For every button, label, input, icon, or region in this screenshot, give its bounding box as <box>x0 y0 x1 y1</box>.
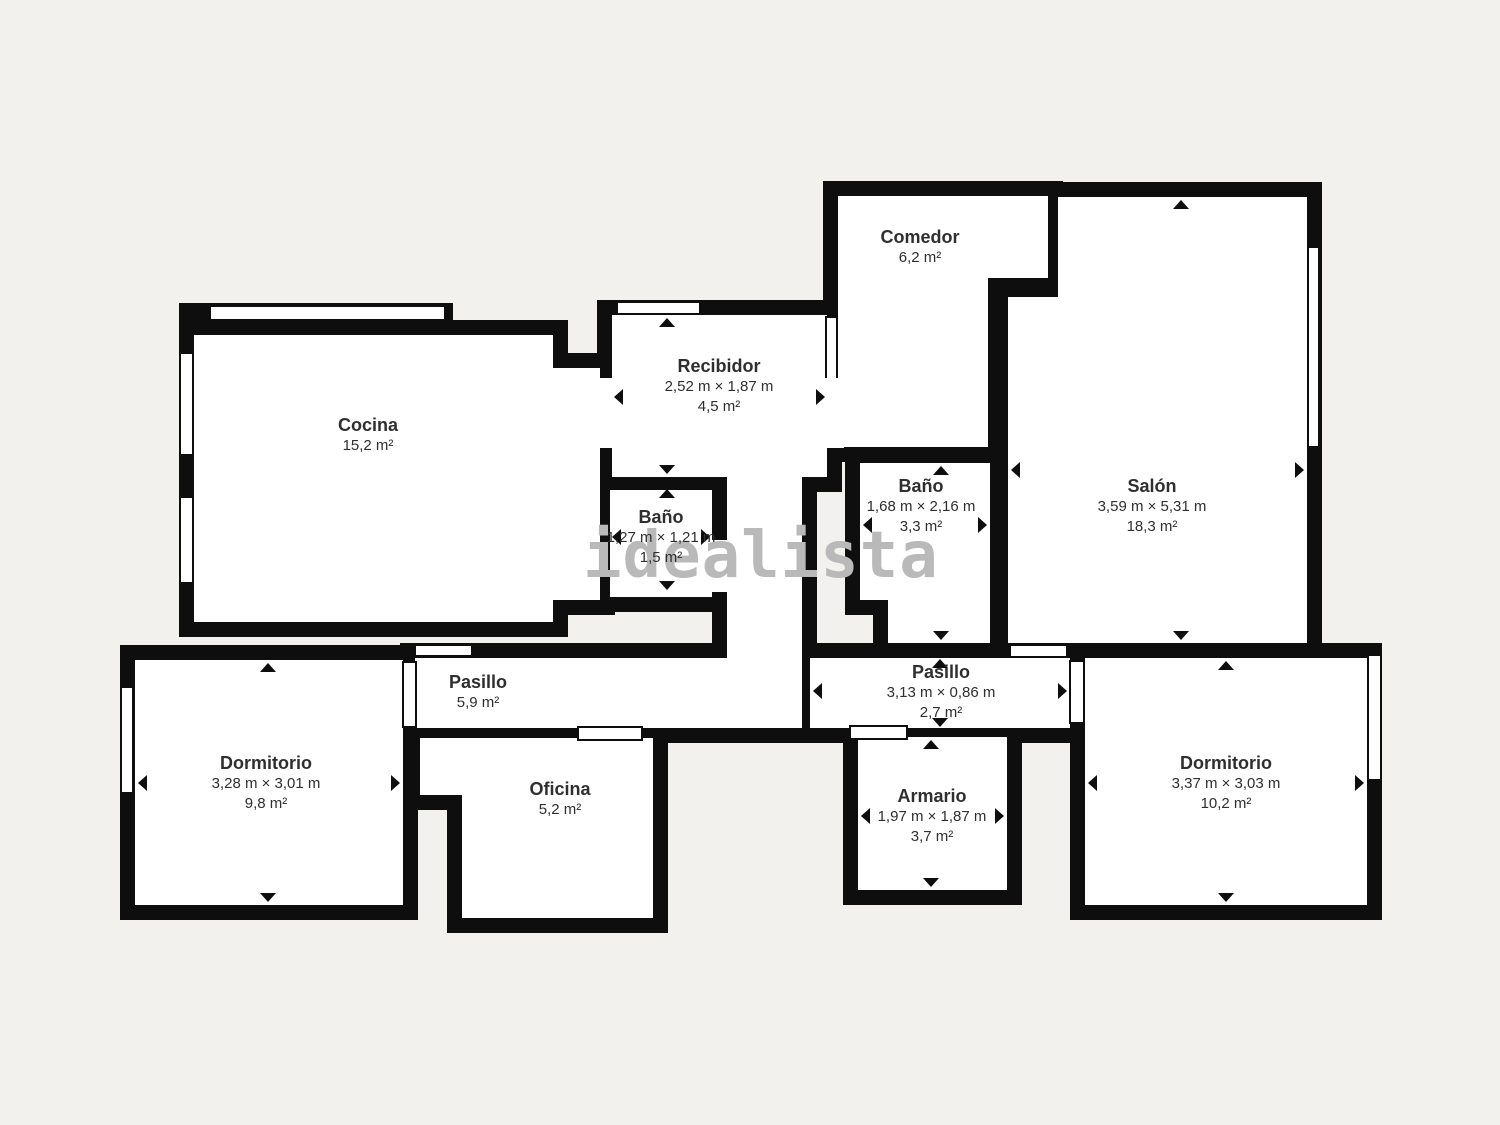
room-label-armario: Armario 1,97 m × 1,87 m 3,7 m² <box>878 786 987 847</box>
room-label-recibidor: Recibidor 2,52 m × 1,87 m 4,5 m² <box>665 356 774 417</box>
room-name: Dormitorio <box>212 753 321 774</box>
room-name: Salón <box>1098 476 1207 497</box>
room-area: 5,2 m² <box>529 800 590 820</box>
room-area: 9,8 m² <box>212 794 321 814</box>
room-area: 3,7 m² <box>878 827 987 847</box>
floor-plan: idealista Comedor 6,2 m² Cocina 15,2 m² … <box>0 0 1500 1125</box>
room-name: Armario <box>878 786 987 807</box>
room-label-salon: Salón 3,59 m × 5,31 m 18,3 m² <box>1098 476 1207 537</box>
room-area: 2,7 m² <box>887 703 996 723</box>
room-dims: 1,27 m × 1,21 m <box>607 528 716 548</box>
room-label-comedor: Comedor 6,2 m² <box>880 227 959 268</box>
room-area: 5,9 m² <box>449 693 507 713</box>
room-area: 18,3 m² <box>1098 517 1207 537</box>
room-dims: 3,13 m × 0,86 m <box>887 683 996 703</box>
room-name: Cocina <box>338 415 398 436</box>
room-name: Pasillo <box>449 672 507 693</box>
room-dims: 1,68 m × 2,16 m <box>867 497 976 517</box>
room-area: 4,5 m² <box>665 397 774 417</box>
room-label-dormitorio-derecho: Dormitorio 3,37 m × 3,03 m 10,2 m² <box>1172 753 1281 814</box>
room-area: 15,2 m² <box>338 436 398 456</box>
room-dims: 1,97 m × 1,87 m <box>878 807 987 827</box>
room-dims: 3,37 m × 3,03 m <box>1172 774 1281 794</box>
room-name: Oficina <box>529 779 590 800</box>
room-label-pasillo-derecho: Pasillo 3,13 m × 0,86 m 2,7 m² <box>887 662 996 723</box>
room-dims: 2,52 m × 1,87 m <box>665 377 774 397</box>
room-label-dormitorio-izquierdo: Dormitorio 3,28 m × 3,01 m 9,8 m² <box>212 753 321 814</box>
room-name: Comedor <box>880 227 959 248</box>
room-name: Recibidor <box>665 356 774 377</box>
room-label-bano: Baño 1,68 m × 2,16 m 3,3 m² <box>867 476 976 537</box>
room-name: Dormitorio <box>1172 753 1281 774</box>
room-name: Pasillo <box>887 662 996 683</box>
room-dims: 3,59 m × 5,31 m <box>1098 497 1207 517</box>
room-area: 3,3 m² <box>867 517 976 537</box>
room-name: Baño <box>607 507 716 528</box>
room-floor-cocina <box>194 335 600 622</box>
room-label-cocina: Cocina 15,2 m² <box>338 415 398 456</box>
room-label-pasillo-izquierdo: Pasillo 5,9 m² <box>449 672 507 713</box>
room-label-bano-recibidor: Baño 1,27 m × 1,21 m 1,5 m² <box>607 507 716 568</box>
room-area: 10,2 m² <box>1172 794 1281 814</box>
room-area: 1,5 m² <box>607 548 716 568</box>
room-label-oficina: Oficina 5,2 m² <box>529 779 590 820</box>
room-name: Baño <box>867 476 976 497</box>
room-dims: 3,28 m × 3,01 m <box>212 774 321 794</box>
room-area: 6,2 m² <box>880 248 959 268</box>
